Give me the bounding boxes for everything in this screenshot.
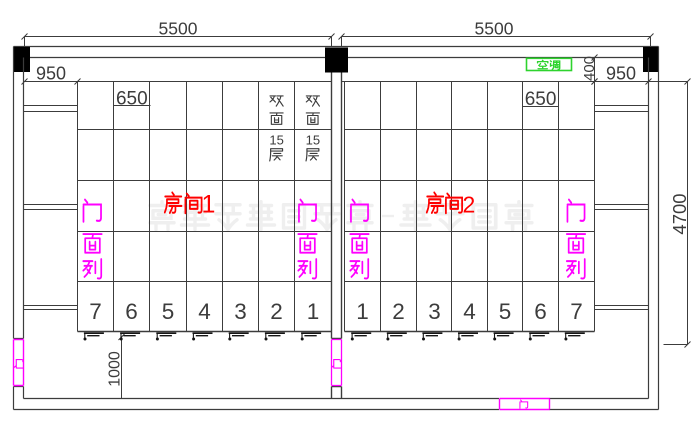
svg-text:6: 6: [125, 299, 138, 324]
svg-text:7: 7: [89, 299, 102, 324]
svg-text:5500: 5500: [475, 19, 514, 39]
svg-text:5: 5: [162, 299, 175, 324]
svg-text:1: 1: [307, 299, 320, 324]
svg-text:3: 3: [428, 299, 441, 324]
svg-text:650: 650: [116, 89, 148, 110]
svg-text:1: 1: [356, 299, 369, 324]
svg-text:1000: 1000: [107, 351, 124, 387]
svg-text:4700: 4700: [669, 193, 690, 234]
svg-text:7: 7: [570, 299, 583, 324]
svg-text:2: 2: [463, 192, 476, 218]
svg-text:5500: 5500: [159, 19, 198, 39]
svg-text:400: 400: [581, 56, 598, 81]
svg-text:950: 950: [606, 64, 636, 84]
svg-text:3: 3: [234, 299, 247, 324]
svg-text:2: 2: [270, 299, 283, 324]
svg-text:5: 5: [499, 299, 512, 324]
svg-text:4: 4: [198, 299, 211, 324]
svg-text:15: 15: [269, 133, 283, 148]
svg-text:950: 950: [36, 64, 66, 84]
svg-text:6: 6: [534, 299, 547, 324]
svg-text:650: 650: [525, 89, 557, 110]
svg-text:1: 1: [202, 191, 216, 219]
svg-text:4: 4: [463, 299, 476, 324]
svg-text:15: 15: [306, 133, 320, 148]
svg-text:2: 2: [392, 299, 405, 324]
